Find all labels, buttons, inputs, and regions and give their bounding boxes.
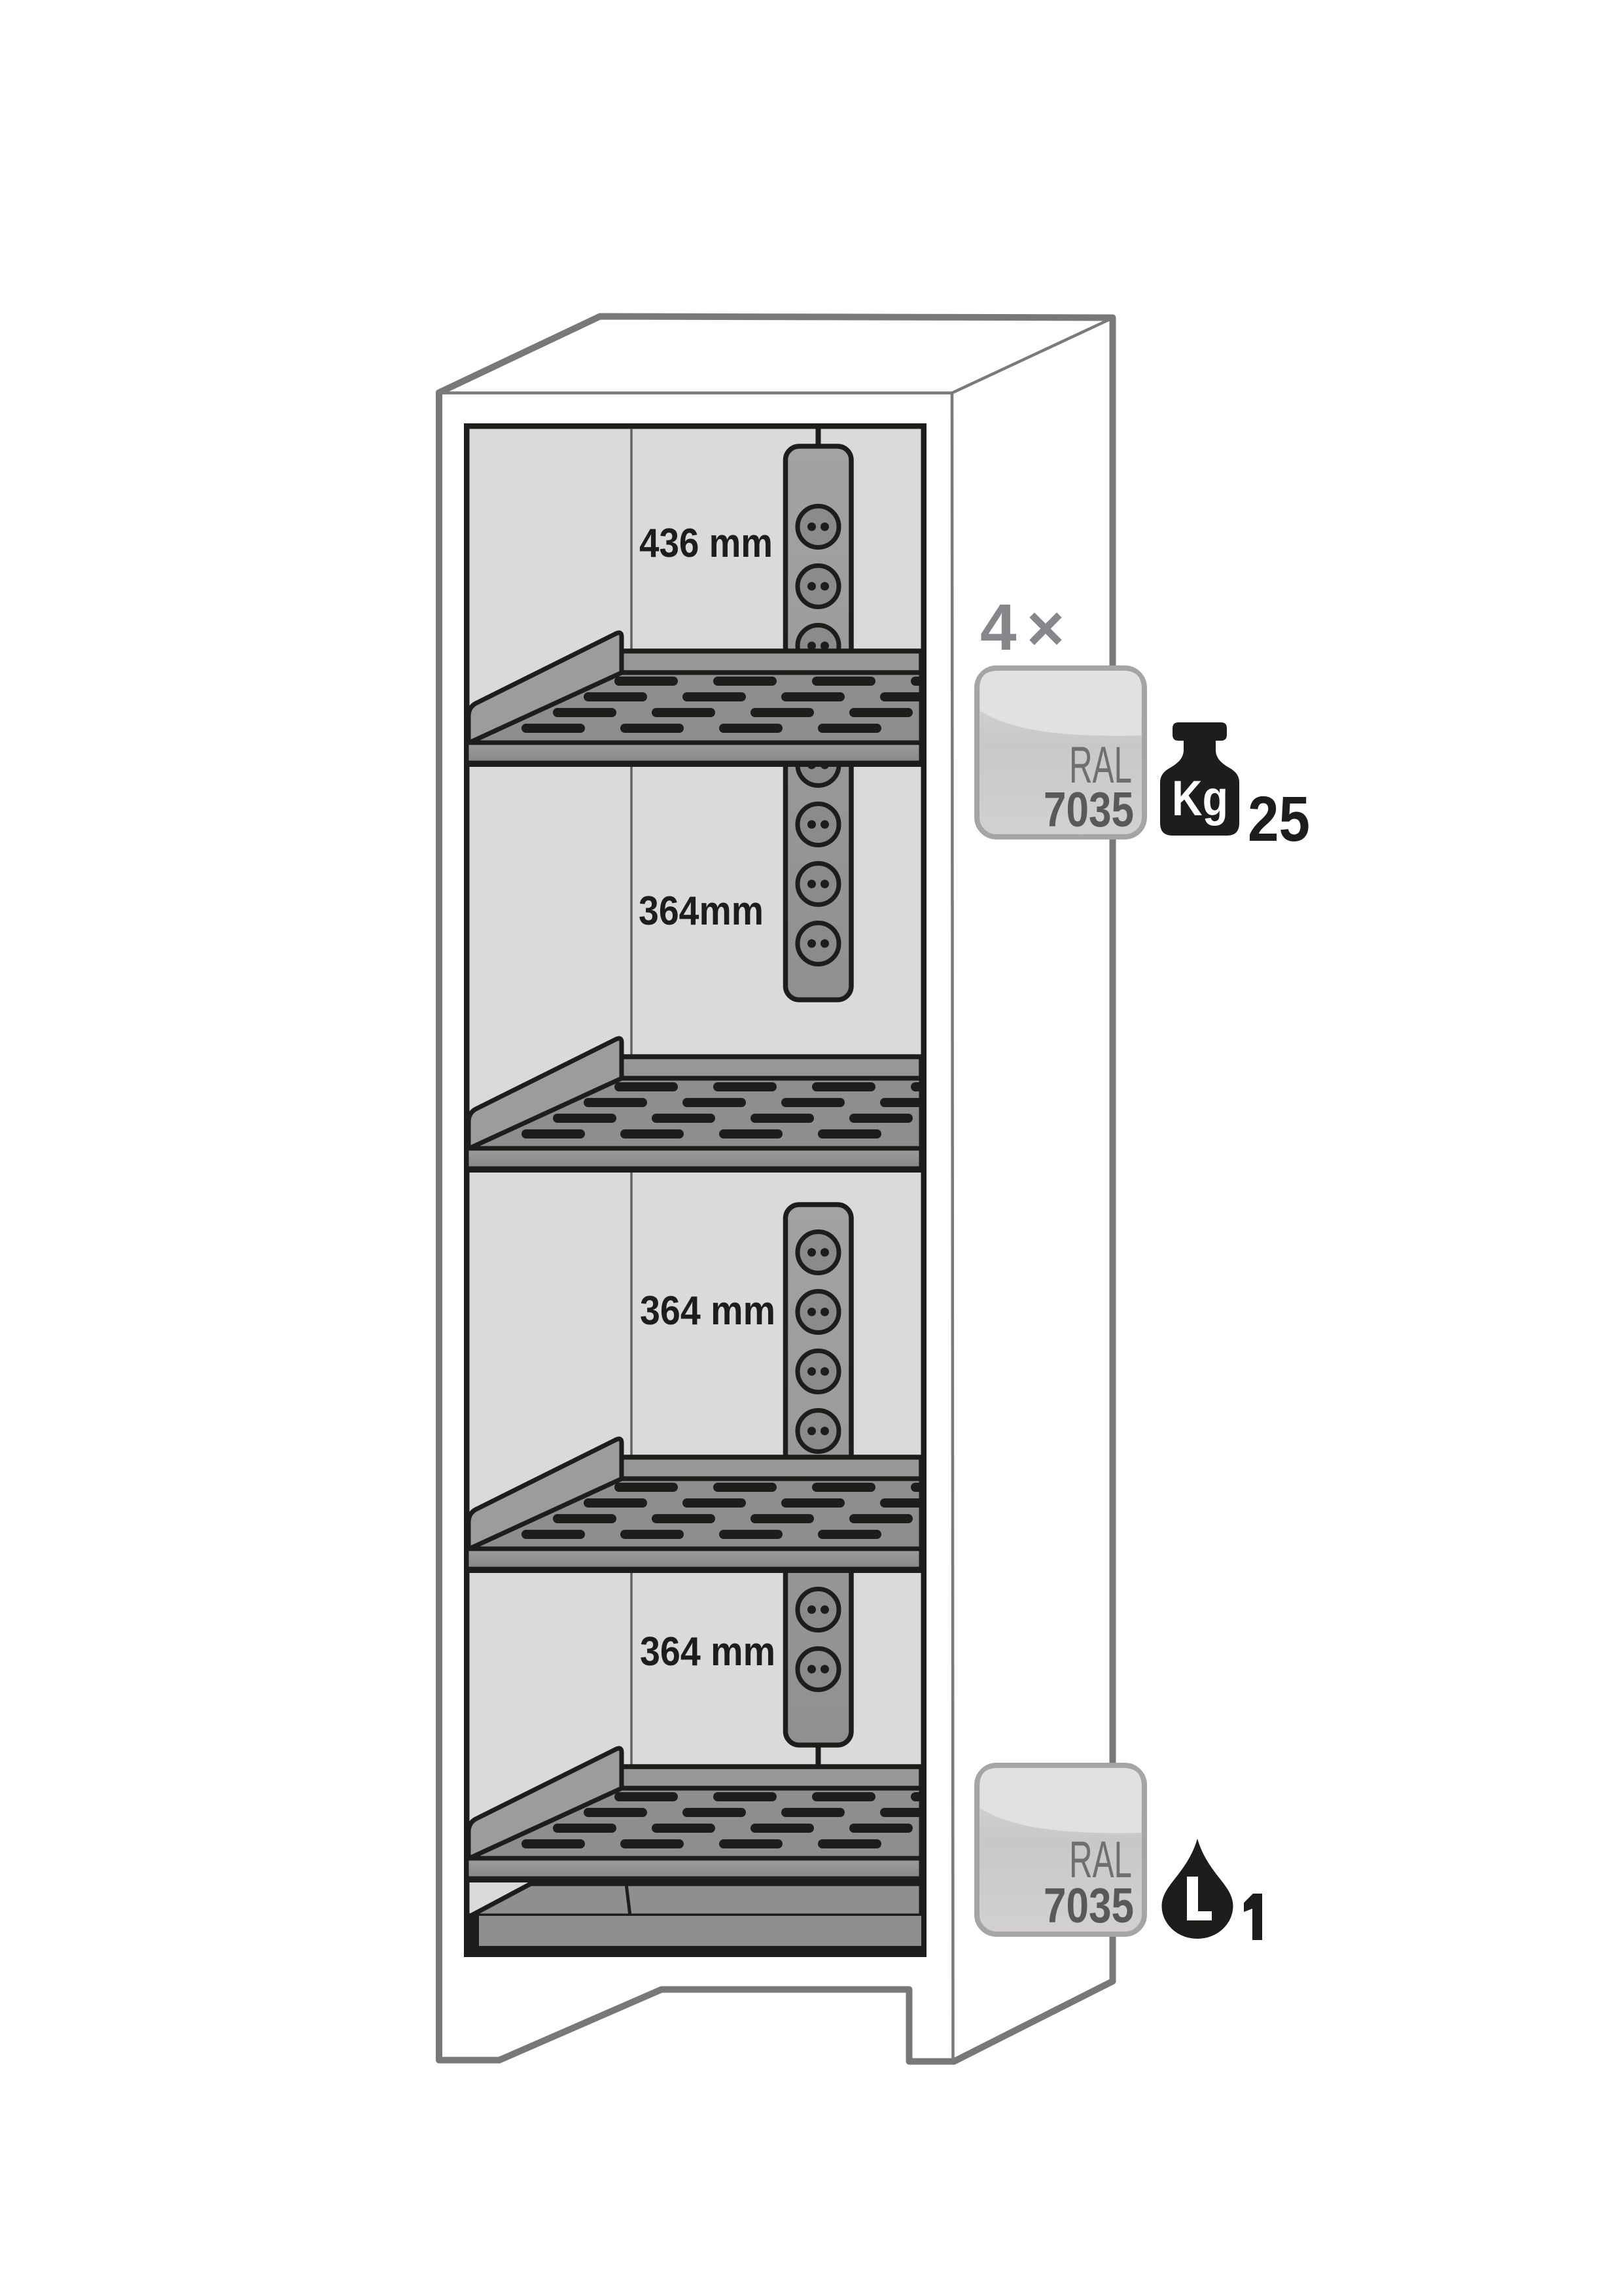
svg-text:364mm: 364mm xyxy=(639,889,764,934)
svg-text:×: × xyxy=(1027,592,1065,664)
svg-text:4: 4 xyxy=(980,591,1017,664)
svg-text:364 mm: 364 mm xyxy=(640,1288,775,1333)
svg-text:25: 25 xyxy=(1248,783,1310,855)
svg-text:Kg: Kg xyxy=(1172,771,1228,826)
svg-text:7035: 7035 xyxy=(1044,1878,1134,1933)
svg-text:436 mm: 436 mm xyxy=(639,521,773,566)
svg-text:364 mm: 364 mm xyxy=(640,1629,775,1674)
svg-text:7035: 7035 xyxy=(1044,782,1134,837)
